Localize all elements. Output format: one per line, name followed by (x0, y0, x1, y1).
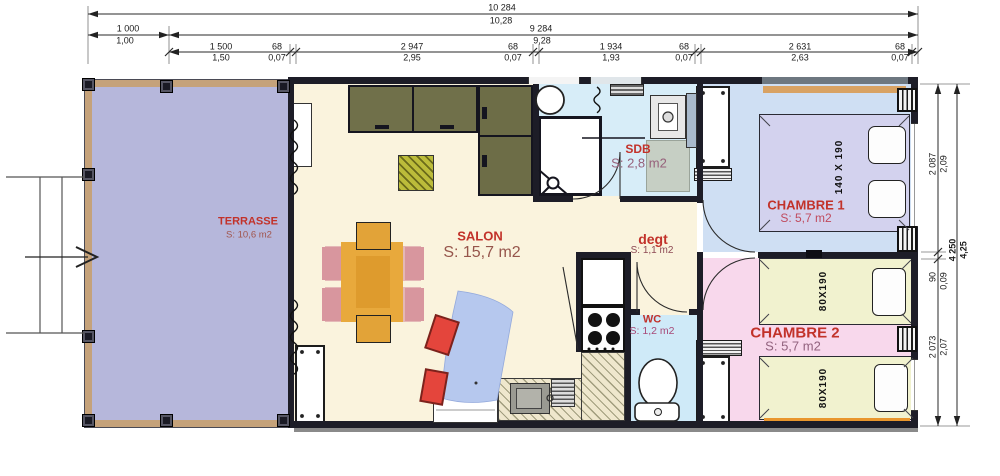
table-seat-bottom (356, 315, 391, 343)
dim-label: 68 (508, 43, 518, 52)
label-sdb-area: S: 2,8 m2 (611, 157, 667, 170)
label-sdb: SDB (625, 143, 650, 155)
label-degt: degt (638, 232, 668, 246)
pillow (868, 126, 906, 164)
headboard-strip (763, 86, 906, 93)
label-salon: SALON (457, 230, 503, 243)
label-bed2-size-chambre2: 80X190 (819, 368, 829, 408)
chair-pad (405, 247, 424, 280)
dim-label: 0,09 (940, 272, 949, 290)
dim-label: 2,63 (791, 54, 809, 63)
salon-cabinet (295, 345, 325, 423)
terrasse-post (160, 80, 173, 93)
dim-label: 10 284 (488, 4, 516, 13)
dim-label: 2 947 (401, 43, 424, 52)
dim-label: 2,07 (940, 338, 949, 356)
label-chambre1-area: S: 5,7 m2 (780, 212, 831, 224)
dim-label: 1 500 (210, 43, 233, 52)
wall-left (288, 77, 294, 428)
dim-label: 1 000 (117, 25, 140, 34)
dim-label: 9,28 (533, 37, 551, 46)
dim-label: 90 (929, 272, 938, 282)
kitchen-sink-basin (516, 388, 542, 409)
cabinet-handle (482, 155, 487, 167)
dim-label: 1,00 (116, 37, 134, 46)
wall-wc-top-a (625, 309, 640, 315)
window-top-salon (528, 77, 580, 84)
label-wc-area: S: 1,2 m2 (630, 326, 675, 337)
wall-shadow (294, 428, 918, 432)
dining-table-center (356, 256, 390, 308)
sdb-radiator (610, 84, 644, 96)
pillow (872, 268, 906, 316)
nightstand (897, 326, 917, 352)
stairs (6, 177, 85, 333)
dim-label: 2,09 (940, 155, 949, 173)
stove (581, 306, 625, 352)
label-chambre2-area: S: 5,7 m2 (765, 340, 821, 353)
label-degt-area: S: 1,1 m2 (631, 246, 674, 256)
wall-wc-left (625, 254, 631, 421)
wall-shelf (897, 88, 917, 112)
label-terrasse: TERRASSE (218, 217, 278, 228)
wall-kitchen-cap (576, 252, 631, 258)
wall-chambre-left-lower (697, 252, 703, 421)
dim-label: 9 284 (530, 25, 553, 34)
dim-label: 0,07 (504, 54, 522, 63)
chair-pad (322, 288, 341, 321)
wall-sdb-bottom-b (620, 196, 703, 202)
floor-plan-canvas: 10 284 10,28 1 000 1,00 9 284 9,28 1 500… (0, 0, 1000, 476)
window-top-chambre1 (762, 77, 908, 84)
wall-stud (806, 250, 822, 258)
wall-shelf (897, 226, 917, 252)
window-right-chambre1 (911, 123, 918, 227)
dim-label: 2 087 (929, 153, 938, 176)
terrasse-post (82, 168, 95, 181)
sdb-cabinet (686, 93, 697, 148)
dim-label: 2 631 (789, 43, 812, 52)
terrasse-post (82, 78, 95, 91)
table-seat-top (356, 222, 391, 250)
dim-label: 0,07 (268, 54, 286, 63)
chair-pad (322, 247, 341, 280)
cabinet-handle (440, 125, 454, 129)
terrasse-post (82, 414, 95, 427)
dim-label: 10,28 (490, 17, 513, 26)
room-terrasse (85, 80, 290, 427)
dim-label: 1 934 (600, 43, 623, 52)
window-top-sdb (590, 77, 642, 84)
dim-label: 4 250 (949, 239, 958, 262)
dim-label: 0,07 (675, 54, 693, 63)
wall-chambre-divider (758, 252, 911, 258)
tall-cabinet-divider (479, 135, 532, 137)
dim-label: 68 (895, 43, 905, 52)
terrasse-post (160, 414, 173, 427)
wall-kitchen-left (576, 252, 581, 352)
terrasse-post (277, 80, 290, 93)
wall-chambre-left-upper (697, 84, 703, 203)
tall-cabinet (478, 85, 533, 196)
label-salon-area: S: 15,7 m2 (443, 245, 520, 261)
floor-mat-hatched (398, 155, 434, 191)
wall-radiator (292, 103, 312, 167)
dim-label: 2 073 (929, 336, 938, 359)
wall-sdb-bottom-a (533, 196, 573, 202)
dish-drainer (551, 379, 575, 407)
label-bed1-size-chambre2: 80X190 (819, 271, 829, 311)
dim-label: 68 (272, 43, 282, 52)
wall-wc-top-b (689, 309, 697, 315)
vanity-basin (658, 103, 678, 131)
window-right-chambre2 (911, 359, 918, 411)
fridge (581, 258, 625, 306)
terrasse-post (82, 330, 95, 343)
pillow (874, 364, 908, 412)
label-bed-size-chambre1: 140 X 190 (835, 140, 845, 195)
kitchen-cabinet-divider (412, 86, 414, 132)
shower (538, 116, 602, 196)
dim-label: 1,50 (212, 54, 230, 63)
terrasse-post (277, 414, 290, 427)
cabinet-handle (482, 107, 487, 119)
wall-bottom (288, 421, 918, 428)
chair-pad (405, 288, 424, 321)
dim-label: 4,25 (960, 241, 969, 259)
label-terrasse-area: S: 10,6 m2 (226, 230, 272, 240)
cabinet-handle (375, 125, 389, 129)
dim-label: 0,07 (891, 54, 909, 63)
dim-label: 1,93 (602, 54, 620, 63)
kitchen-counter-vertical (581, 352, 625, 421)
pillow (868, 180, 906, 218)
label-chambre1: CHAMBRE 1 (767, 199, 844, 212)
window-bottom-salon (433, 397, 498, 423)
dim-label: 2,95 (403, 54, 421, 63)
wall-sdb-left (533, 84, 539, 202)
dim-label: 68 (679, 43, 689, 52)
